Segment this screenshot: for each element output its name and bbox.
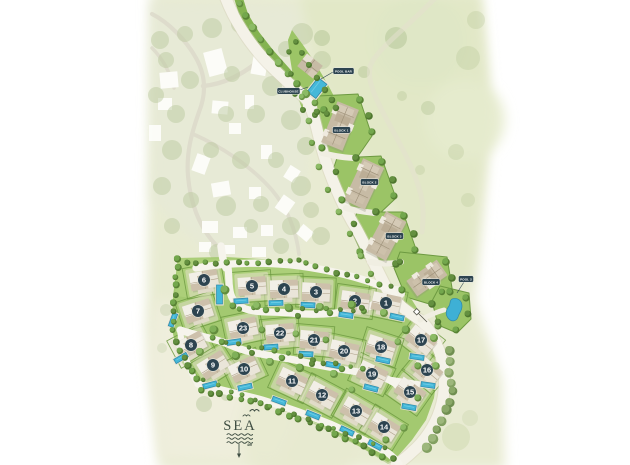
svg-text:POOL 2: POOL 2 <box>460 277 472 281</box>
svg-text:BLOCK 2: BLOCK 2 <box>362 180 376 184</box>
svg-text:9: 9 <box>211 360 215 369</box>
svg-text:18: 18 <box>377 342 385 351</box>
svg-text:17: 17 <box>417 335 425 344</box>
svg-text:1: 1 <box>384 298 388 307</box>
svg-text:12: 12 <box>318 390 326 399</box>
svg-text:16: 16 <box>423 365 431 374</box>
svg-text:14: 14 <box>380 422 389 431</box>
svg-text:13: 13 <box>352 406 360 415</box>
svg-text:SEA: SEA <box>223 418 256 434</box>
svg-text:3: 3 <box>314 287 318 296</box>
svg-text:POOL BAR: POOL BAR <box>335 69 353 73</box>
svg-text:BLOCK 1: BLOCK 1 <box>334 128 348 132</box>
svg-text:CLUBHOUSE: CLUBHOUSE <box>278 89 298 93</box>
svg-text:BLOCK 4: BLOCK 4 <box>424 280 438 284</box>
svg-text:7: 7 <box>196 306 200 315</box>
svg-text:8: 8 <box>189 340 193 349</box>
svg-text:22: 22 <box>276 328 284 337</box>
svg-text:6: 6 <box>202 275 206 284</box>
svg-text:4m: 4m <box>247 443 252 447</box>
svg-text:19: 19 <box>368 369 376 378</box>
svg-text:BLOCK 3: BLOCK 3 <box>387 234 401 238</box>
svg-text:23: 23 <box>239 323 247 332</box>
svg-text:11: 11 <box>288 376 296 385</box>
svg-text:21: 21 <box>310 335 318 344</box>
svg-text:15: 15 <box>406 387 414 396</box>
svg-text:20: 20 <box>340 346 348 355</box>
svg-text:10: 10 <box>240 364 248 373</box>
svg-text:5: 5 <box>250 281 254 290</box>
